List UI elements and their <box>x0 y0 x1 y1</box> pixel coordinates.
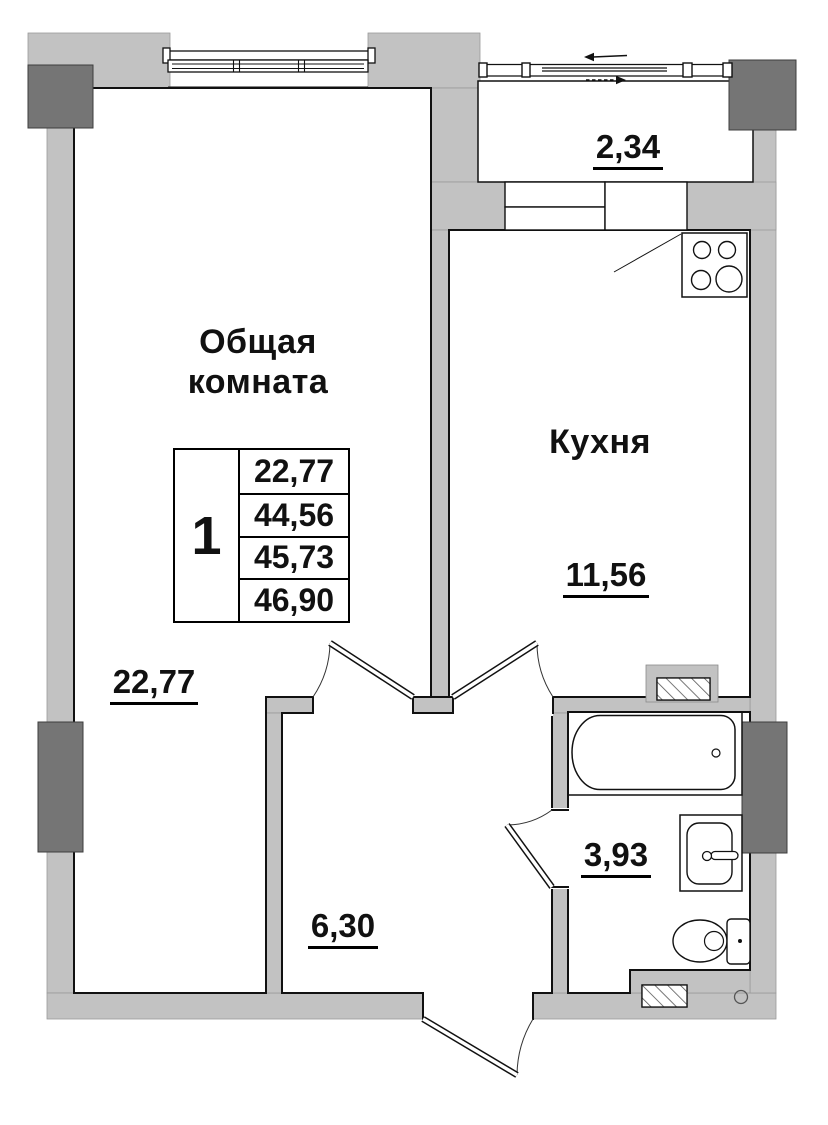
table-row-area-4: 46,90 <box>240 578 348 621</box>
table-row-area-1: 22,77 <box>240 450 348 493</box>
window-living-room <box>163 48 375 87</box>
slide-arrow-left-icon <box>584 53 627 61</box>
room-hallway <box>282 713 552 993</box>
bathroom-area: 3,93 <box>536 838 696 878</box>
bathtub-icon <box>568 712 742 795</box>
kitchen-label: Кухня <box>460 422 740 462</box>
toilet-icon <box>673 919 750 964</box>
table-row-area-3: 45,73 <box>240 536 348 579</box>
balcony-area: 2,34 <box>548 130 708 170</box>
living-room-label-line2: комната <box>118 362 398 402</box>
living-room-area: 22,77 <box>74 665 234 705</box>
vent-hatch-top-icon <box>657 678 710 700</box>
kitchen-area: 11,56 <box>526 558 686 598</box>
column-top-right <box>729 60 796 130</box>
living-room-label: Общая комната <box>118 322 398 402</box>
column-left-middle <box>38 722 83 852</box>
floor-plan: Общая комната 22,77 Кухня 11,56 2,34 3,9… <box>0 0 828 1125</box>
apartment-summary-table: 1 22,77 44,56 45,73 46,90 <box>173 448 350 623</box>
vent-hatch-bottom-icon <box>642 985 687 1007</box>
column-bath-right <box>742 722 787 853</box>
door-entrance <box>423 1019 533 1075</box>
balcony-glazing <box>479 53 732 84</box>
hallway-area: 6,30 <box>263 909 423 949</box>
living-room-label-line1: Общая <box>118 322 398 362</box>
table-row-area-2: 44,56 <box>240 493 348 536</box>
rooms-count: 1 <box>175 450 240 621</box>
room-kitchen <box>449 230 750 697</box>
column-top-left <box>28 65 93 128</box>
balcony-door-block <box>505 182 687 230</box>
